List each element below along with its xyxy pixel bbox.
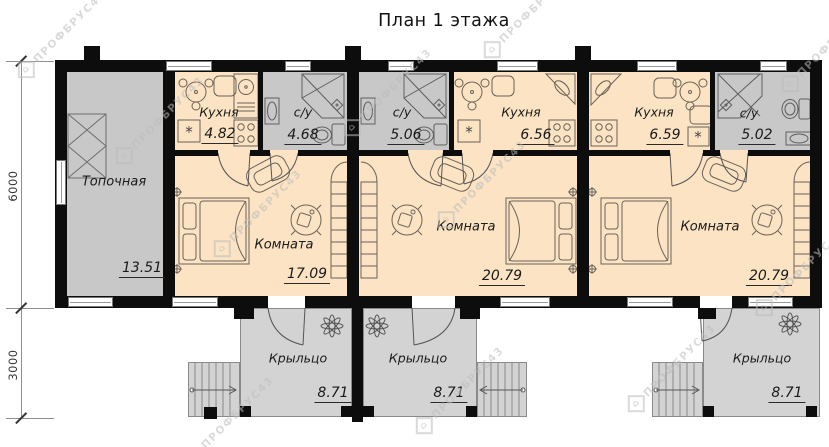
window	[497, 61, 538, 71]
porch-post	[341, 406, 352, 417]
svg-text:*: *	[185, 123, 193, 141]
plant-icon	[321, 313, 801, 337]
flue-icon	[68, 114, 106, 178]
room-label-kitchen2: Кухня	[501, 105, 540, 120]
window	[627, 297, 673, 307]
cabinet-icon	[214, 76, 236, 96]
door-opening	[268, 296, 305, 308]
porch-post	[363, 406, 374, 417]
window	[166, 61, 212, 71]
wall	[703, 150, 720, 156]
wardrobe-icon	[331, 162, 347, 278]
wall	[352, 308, 363, 422]
house-icon: ⌂	[344, 119, 361, 136]
house-icon: ⌂	[756, 299, 773, 316]
wall	[359, 150, 408, 156]
wall	[698, 308, 716, 319]
room-area-porch3: 8.71	[768, 385, 805, 403]
room-label-bath1: с/у	[294, 105, 312, 120]
dimension-extension-line	[6, 308, 54, 309]
wall	[345, 46, 361, 60]
room-area-boiler: 13.51	[119, 260, 165, 278]
room-label-bath3: с/у	[740, 106, 758, 121]
corner-sink-icon	[546, 74, 575, 104]
floor-plan: План 1 этажа *	[0, 0, 829, 447]
room-label-boiler: Топочная	[82, 175, 146, 190]
room-area-room1: 17.09	[284, 266, 330, 284]
window	[500, 297, 550, 307]
room-area-kitchen1: 4.82	[201, 126, 238, 144]
room-label-porch3: Крыльцо	[733, 351, 791, 366]
window	[760, 61, 787, 71]
window	[68, 297, 113, 307]
room-area-bath3: 5.02	[738, 127, 775, 145]
wall	[250, 150, 270, 156]
porch-post	[703, 406, 714, 417]
house-icon: ⌂	[18, 61, 35, 78]
kitchen-table-icon	[455, 79, 489, 110]
svg-text:*: *	[465, 123, 473, 141]
wall	[258, 72, 263, 153]
porch-post	[806, 406, 817, 417]
wall	[449, 72, 454, 153]
dimension-line	[21, 61, 22, 419]
wall	[748, 150, 810, 156]
armchair-icon	[700, 154, 749, 194]
room-area-kitchen3: 6.59	[646, 127, 683, 145]
window	[172, 297, 218, 307]
vent-symbol: *	[458, 120, 480, 142]
house-icon: ⌂	[116, 147, 133, 164]
house-icon: ⌂	[416, 417, 433, 434]
round-table-icon	[752, 205, 782, 235]
door-opening	[700, 296, 732, 308]
wall	[84, 46, 100, 60]
dimension-label-6000: 6000	[6, 170, 20, 201]
house-icon: ⌂	[628, 395, 645, 412]
room-label-room1: Комната	[255, 238, 314, 253]
room-area-porch1: 8.71	[314, 385, 351, 403]
room-label-porch1: Крыльцо	[269, 351, 327, 366]
kitchen-table-icon	[673, 79, 707, 110]
round-table-icon	[392, 205, 422, 235]
dimension-extension-line	[6, 418, 54, 419]
room-label-porch2: Крыльцо	[389, 351, 447, 366]
wall	[347, 60, 359, 308]
vent-symbol: *	[688, 127, 709, 146]
room-area-bath2: 5.06	[387, 127, 424, 145]
wardrobe-icon	[361, 162, 377, 278]
window	[637, 61, 677, 71]
room-label-kitchen1: Кухня	[199, 105, 238, 120]
round-table-icon	[291, 205, 321, 235]
wall	[589, 150, 670, 156]
window	[285, 61, 311, 71]
house-icon: ⌂	[782, 75, 799, 92]
room-area-room2: 20.79	[479, 268, 525, 286]
wall	[443, 150, 462, 156]
window	[56, 160, 66, 205]
wall	[298, 150, 347, 156]
room-label-kitchen3: Кухня	[634, 105, 673, 120]
cabinet-icon	[492, 76, 514, 96]
wall	[234, 308, 254, 319]
wall	[575, 46, 591, 60]
house-icon: ⌂	[438, 211, 455, 228]
room-label-bath2: с/у	[393, 105, 411, 120]
wall	[710, 72, 715, 153]
porch-post	[204, 407, 217, 419]
stove-icon	[591, 120, 617, 146]
room-label-room3: Комната	[681, 220, 740, 235]
corner-sink-icon	[591, 74, 621, 105]
dimension-label-3000: 3000	[6, 349, 20, 380]
porch-post	[466, 406, 477, 417]
wall	[460, 308, 480, 319]
vent-symbol: *	[178, 120, 200, 142]
house-icon: ⌂	[484, 41, 501, 58]
toilet-icon	[782, 99, 810, 119]
wall	[577, 60, 589, 308]
sink-icon	[786, 132, 812, 145]
sink-icon	[265, 98, 279, 124]
bed-icon	[601, 198, 671, 264]
wall	[175, 150, 218, 156]
house-icon: ⌂	[214, 240, 231, 257]
bed-icon	[506, 198, 576, 264]
room-area-bath1: 4.68	[284, 127, 321, 145]
svg-text:*: *	[694, 128, 702, 146]
door-opening	[412, 296, 455, 308]
